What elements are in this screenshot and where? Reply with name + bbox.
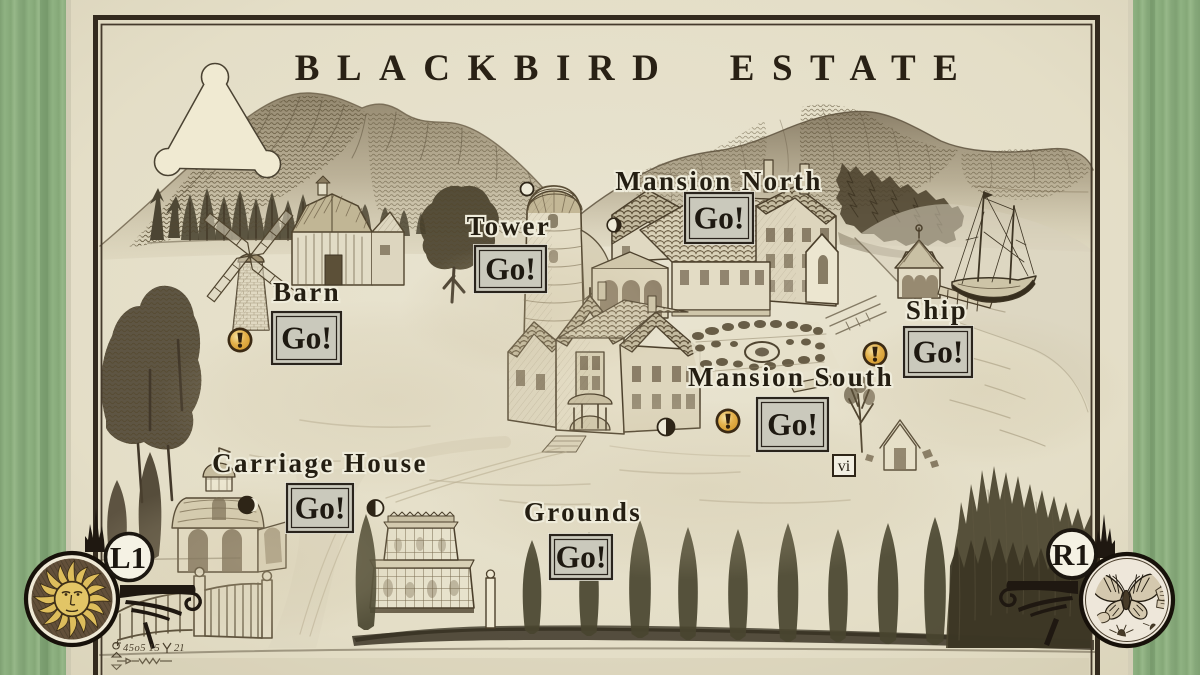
svg-text:45o5 15: 45o5 15 — [123, 643, 160, 654]
svg-text:R1: R1 — [1052, 537, 1090, 572]
svg-text:BLACKBIRD ESTATE: BLACKBIRD ESTATE — [295, 48, 976, 89]
svg-text:Ship: Ship — [906, 295, 968, 325]
svg-text:Go!: Go! — [767, 407, 818, 442]
svg-text:Go!: Go! — [295, 491, 346, 526]
svg-text:Grounds: Grounds — [524, 497, 642, 527]
svg-text:vi: vi — [838, 458, 851, 475]
svg-text:Go!: Go! — [694, 201, 745, 236]
svg-text:L1: L1 — [110, 540, 146, 575]
svg-text:Go!: Go! — [485, 252, 536, 287]
svg-text:Go!: Go! — [556, 540, 607, 575]
svg-text:Barn: Barn — [273, 277, 341, 307]
svg-text:Carriage House: Carriage House — [212, 448, 428, 478]
svg-text:Mansion South: Mansion South — [688, 362, 894, 392]
svg-text:21: 21 — [174, 643, 185, 654]
svg-text:Go!: Go! — [281, 321, 332, 356]
svg-text:Tower: Tower — [467, 211, 552, 241]
svg-text:Go!: Go! — [913, 335, 964, 370]
